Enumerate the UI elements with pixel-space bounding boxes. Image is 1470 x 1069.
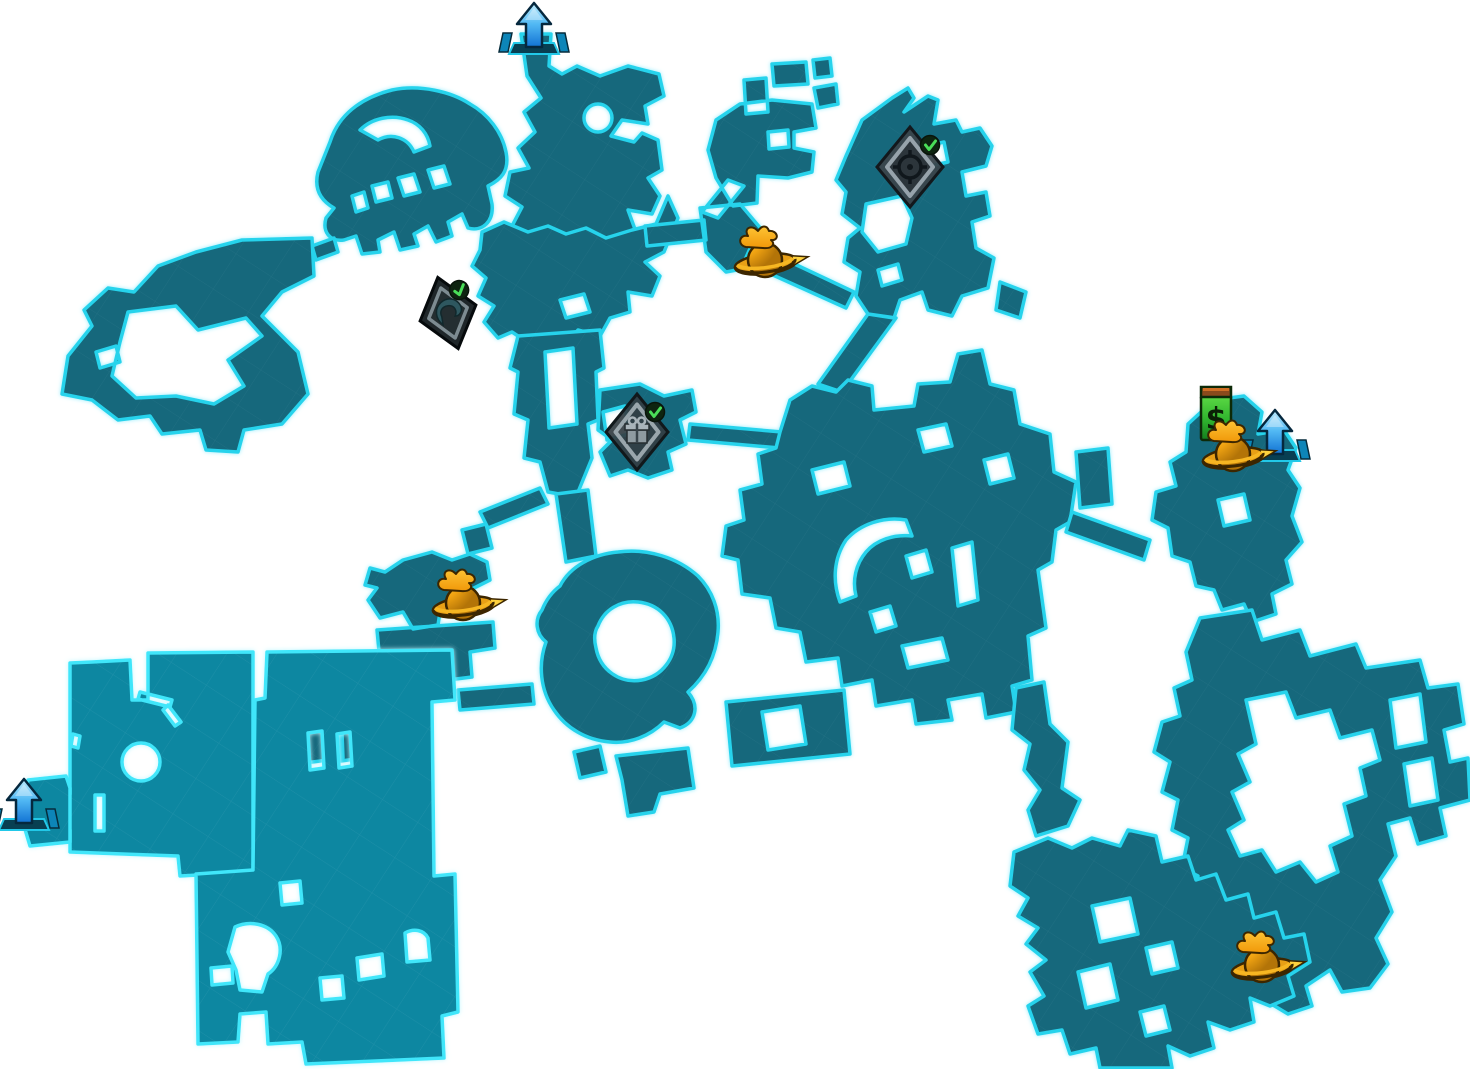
map-zone-northeast-complex xyxy=(814,84,1026,392)
map-zone-east-corridor xyxy=(1066,448,1150,560)
challenge-claw-completed xyxy=(410,269,486,356)
map-zone-north-entry-strip xyxy=(505,34,664,244)
exit-north-arrow xyxy=(499,3,569,54)
world-map-canvas[interactable]: $ xyxy=(0,0,1470,1069)
map-zone-central-donut xyxy=(537,490,718,816)
map-zone-central-room xyxy=(510,330,604,497)
map-zone-southeast-connector xyxy=(1012,682,1080,836)
game-map-screen: $ xyxy=(0,0,1470,1069)
map-zone-southwest-square xyxy=(60,652,253,876)
map-zone-southwest-ring xyxy=(62,238,314,452)
highlighted-zones xyxy=(24,650,458,1064)
map-zone-northwest-skull xyxy=(317,88,507,254)
